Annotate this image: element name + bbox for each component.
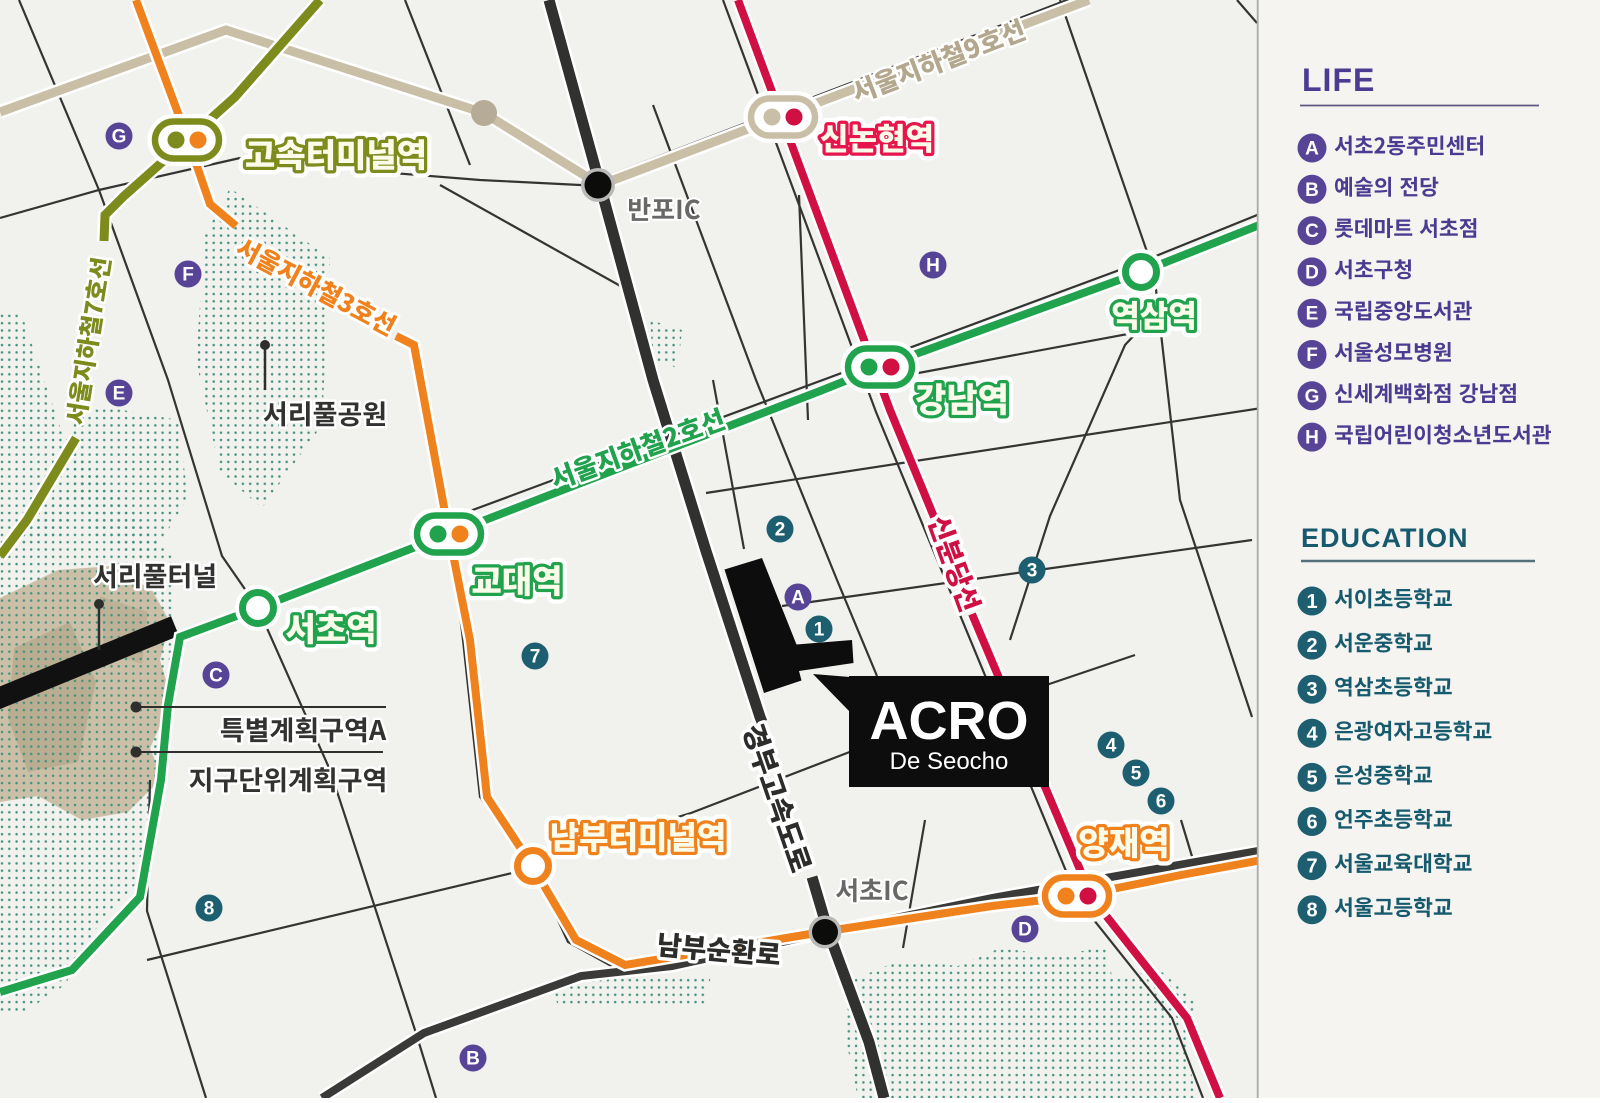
svg-text:LIFE: LIFE (1302, 62, 1375, 98)
svg-text:6: 6 (1306, 812, 1317, 834)
svg-text:B: B (466, 1049, 480, 1070)
svg-text:8: 8 (204, 899, 215, 920)
svg-text:EDUCATION: EDUCATION (1301, 523, 1469, 553)
svg-text:3: 3 (1306, 679, 1317, 701)
svg-text:H: H (1305, 428, 1319, 449)
svg-text:B: B (1305, 180, 1319, 201)
svg-text:1: 1 (814, 620, 825, 641)
svg-text:D: D (1018, 920, 1032, 941)
svg-text:De Seocho: De Seocho (890, 748, 1009, 775)
svg-text:2: 2 (1306, 635, 1317, 657)
svg-text:7: 7 (1306, 856, 1317, 878)
svg-text:6: 6 (1156, 792, 1167, 813)
svg-text:7: 7 (530, 647, 541, 668)
svg-text:8: 8 (1306, 900, 1317, 922)
svg-text:A: A (791, 588, 805, 609)
svg-text:E: E (1306, 304, 1319, 325)
svg-text:H: H (926, 256, 940, 277)
svg-text:F: F (182, 265, 194, 286)
svg-text:3: 3 (1027, 561, 1038, 582)
svg-text:2: 2 (775, 520, 786, 541)
svg-text:4: 4 (1306, 723, 1318, 745)
svg-text:5: 5 (1306, 767, 1317, 789)
svg-text:C: C (1305, 221, 1319, 242)
svg-text:C: C (209, 666, 223, 687)
svg-text:5: 5 (1131, 764, 1142, 785)
svg-text:ACRO: ACRO (870, 691, 1029, 751)
svg-text:G: G (1305, 386, 1320, 407)
svg-text:E: E (113, 384, 126, 405)
svg-text:F: F (1306, 345, 1318, 366)
svg-text:G: G (112, 127, 127, 148)
svg-text:A: A (1305, 139, 1319, 160)
svg-text:4: 4 (1106, 736, 1117, 757)
svg-text:1: 1 (1306, 591, 1317, 613)
svg-text:D: D (1305, 262, 1319, 283)
